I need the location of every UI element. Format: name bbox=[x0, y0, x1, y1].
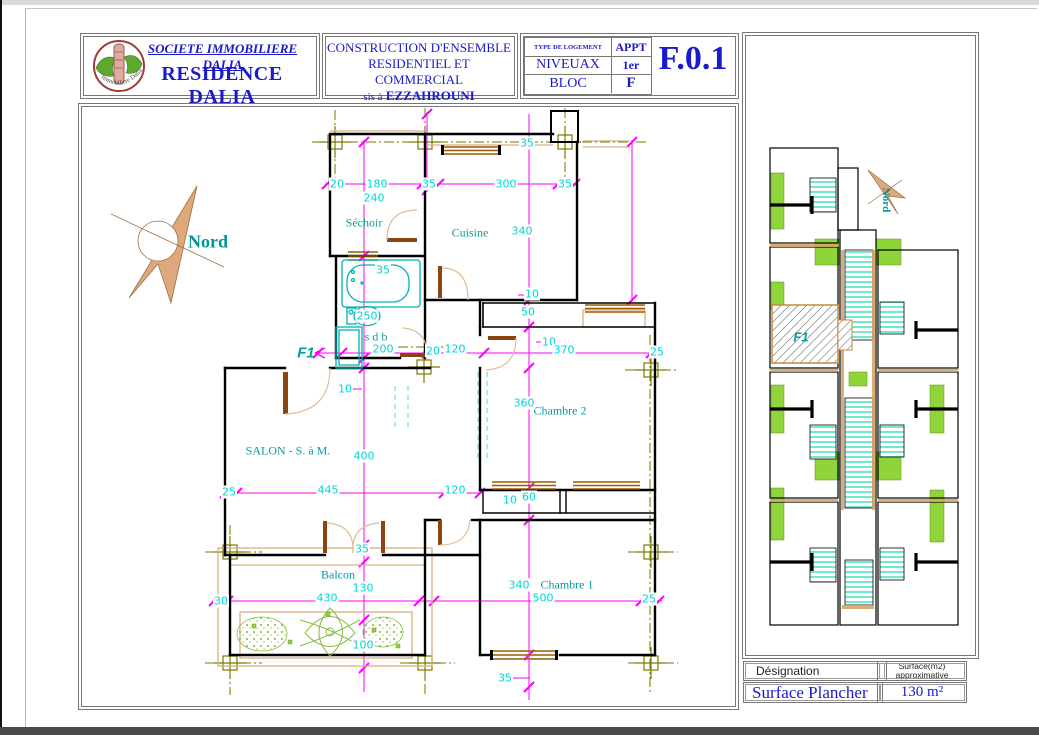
room-label-cuisine: Cuisine bbox=[452, 226, 489, 241]
dim-label: 500 bbox=[532, 592, 555, 605]
key-north-label: Nord bbox=[880, 188, 892, 212]
room-label-balcon: Balcon bbox=[321, 568, 355, 583]
dim-label: 430 bbox=[316, 592, 339, 605]
dim-label: 340 bbox=[508, 579, 531, 592]
cad-drawing-layer bbox=[0, 0, 1039, 735]
type-label: TYPE DE LOGEMENT bbox=[525, 38, 612, 56]
dim-label: 60 bbox=[521, 491, 537, 504]
dim-label: 250 bbox=[356, 310, 379, 323]
room-label-chambre1: Chambre 1 bbox=[541, 578, 594, 593]
dim-label: 10 bbox=[502, 494, 518, 507]
location-name: EZZAHROUNI bbox=[386, 88, 475, 103]
dimension-ticks bbox=[209, 109, 664, 692]
dim-label: 35 bbox=[375, 264, 391, 277]
dim-label: 30 bbox=[213, 595, 229, 608]
dim-label: 35 bbox=[497, 672, 513, 685]
surface-table: Désignation Surface(m2) approximative Su… bbox=[743, 661, 969, 703]
dim-label: 200 bbox=[372, 343, 395, 356]
dim-label: 120 bbox=[444, 484, 467, 497]
dim-label: 35 bbox=[557, 178, 573, 191]
opening-markers bbox=[395, 372, 487, 460]
dim-label: 35 bbox=[354, 543, 370, 556]
index-table: TYPE DE LOGEMENT APPT NIVEUAX 1er BLOC F bbox=[524, 37, 652, 95]
dim-label: 25 bbox=[641, 593, 657, 606]
designation-label: Désignation bbox=[756, 664, 819, 678]
dim-label: 120 bbox=[444, 343, 467, 356]
dim-label: 240 bbox=[363, 192, 386, 205]
level-label: NIVEUAX bbox=[525, 56, 612, 74]
dim-label: 400 bbox=[353, 450, 376, 463]
surface-cell: 130 m² bbox=[877, 682, 967, 703]
dim-label: 50 bbox=[520, 306, 536, 319]
dim-label: 340 bbox=[511, 225, 534, 238]
project-line2: RESIDENTIEL ET COMMERCIAL bbox=[326, 56, 512, 88]
dim-label: 20 bbox=[329, 178, 345, 191]
walls bbox=[225, 111, 655, 655]
dim-label: 180 bbox=[366, 178, 389, 191]
dim-label: 100 bbox=[352, 639, 375, 652]
dim-label: 10 bbox=[524, 288, 540, 301]
residence-name: RESIDENCE DALIA bbox=[128, 63, 316, 109]
dim-label: 130 bbox=[352, 582, 375, 595]
room-label-salon: SALON - S. à M. bbox=[246, 444, 331, 459]
dim-label: 445 bbox=[317, 484, 340, 497]
room-label-sechoir: Séchoir bbox=[346, 216, 383, 231]
surface-label-line2: approximative bbox=[878, 671, 966, 680]
block-label: BLOC bbox=[525, 74, 612, 93]
designation-cell: Surface Plancher bbox=[743, 682, 883, 703]
block-value: F bbox=[611, 74, 651, 93]
planter-plants bbox=[237, 608, 403, 656]
dim-label: 360 bbox=[513, 397, 536, 410]
location-prefix: sis à bbox=[363, 91, 382, 103]
type-value: APPT bbox=[611, 38, 651, 56]
dim-label: 35 bbox=[421, 178, 437, 191]
north-label: Nord bbox=[188, 232, 228, 253]
structural-grid bbox=[205, 108, 678, 695]
drawing-sheet: Immobiliere Dalia SOCIETE IMMOBILIERE DA… bbox=[0, 0, 1039, 735]
sink-icon bbox=[336, 327, 362, 368]
unit-label-f1: F1 bbox=[297, 345, 315, 362]
key-plan-drawing bbox=[770, 148, 958, 625]
surface-header: Surface(m2) approximative bbox=[877, 661, 967, 681]
designation-header: Désignation bbox=[743, 661, 887, 681]
level-value: 1er bbox=[611, 56, 651, 74]
dim-label: 25 bbox=[221, 486, 237, 499]
project-description: CONSTRUCTION D'ENSEMBLE RESIDENTIEL ET C… bbox=[326, 40, 512, 104]
dim-label: 35 bbox=[519, 137, 535, 150]
dim-label: 20 bbox=[425, 345, 441, 358]
designation-value: Surface Plancher bbox=[752, 683, 868, 703]
room-label-chambre2: Chambre 2 bbox=[534, 404, 587, 419]
column-markers bbox=[214, 126, 667, 679]
surface-value: 130 m² bbox=[901, 684, 943, 701]
dim-label: 300 bbox=[495, 178, 518, 191]
drawing-number: F.0.1 bbox=[652, 40, 734, 78]
project-line1: CONSTRUCTION D'ENSEMBLE bbox=[326, 40, 512, 56]
dim-label: 25 bbox=[649, 346, 665, 359]
dim-label: 370 bbox=[553, 344, 576, 357]
key-unit-label-f1: F1 bbox=[793, 330, 808, 345]
windows bbox=[348, 145, 645, 660]
dim-label: 10 bbox=[337, 383, 353, 396]
